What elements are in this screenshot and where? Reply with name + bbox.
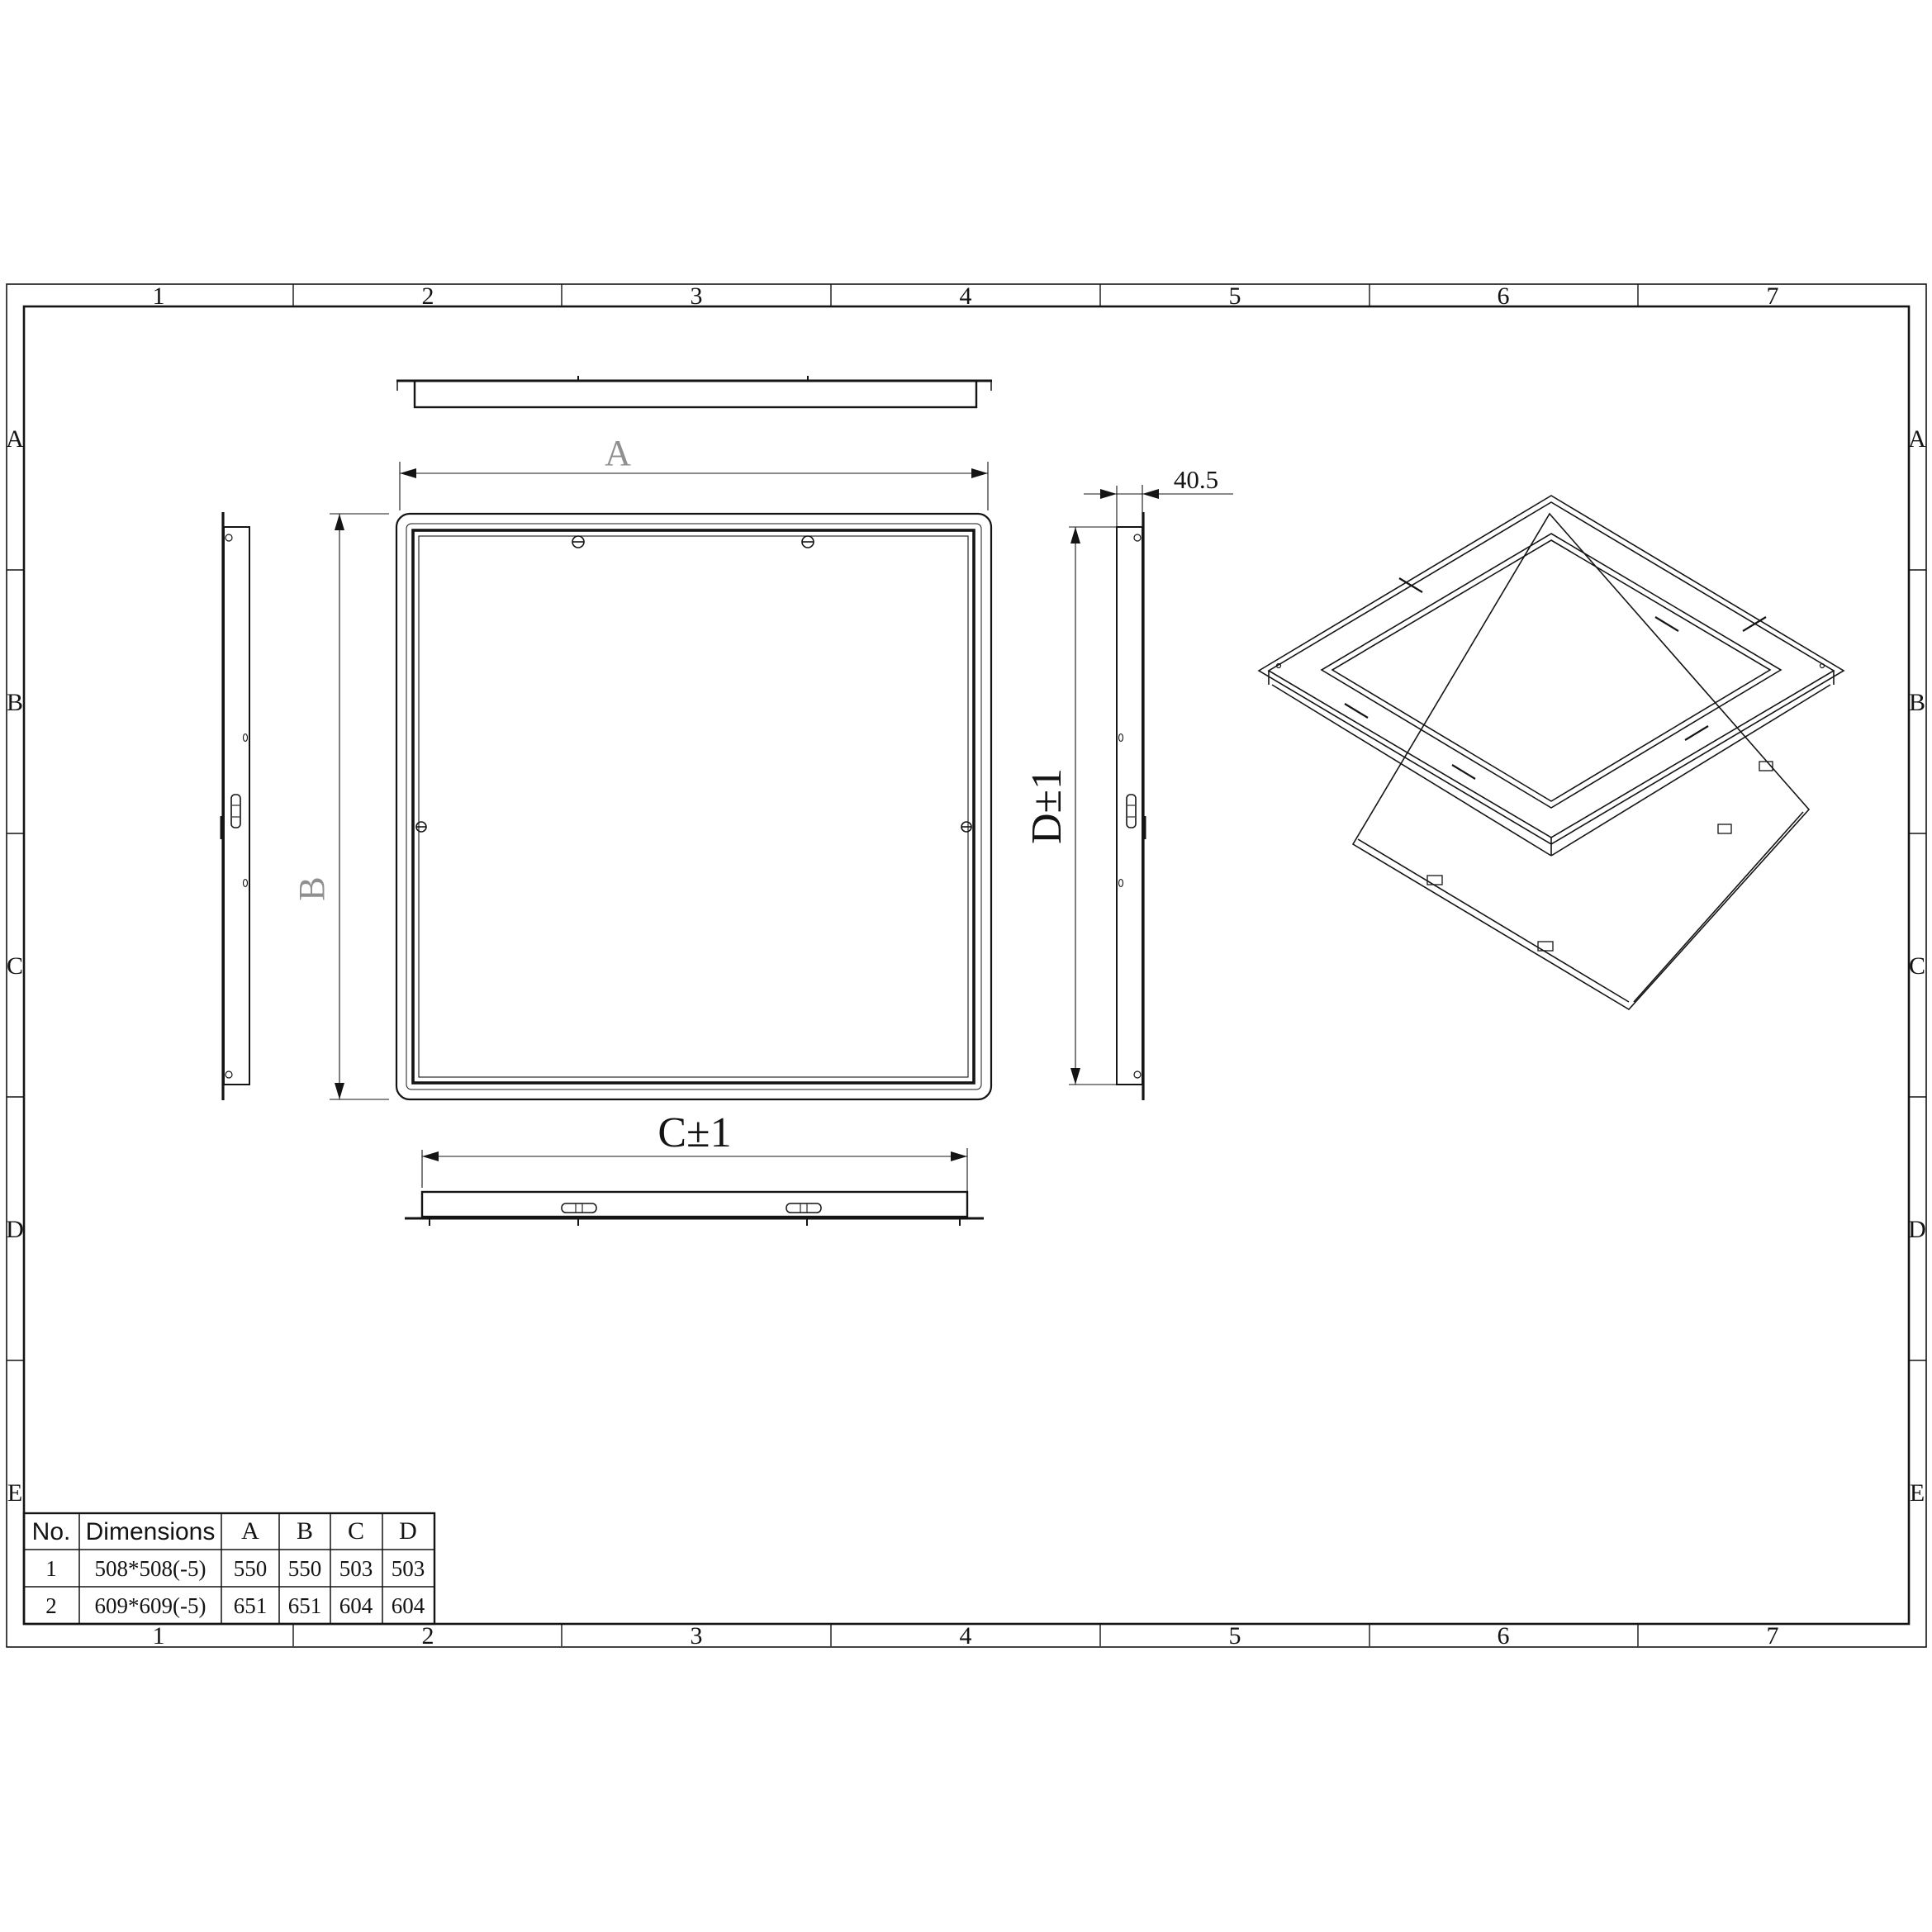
dimension-D: D±1 <box>1023 527 1117 1085</box>
dim-label-D: D±1 <box>1023 768 1070 844</box>
table-header-dimensions: Dimensions <box>86 1518 216 1545</box>
zone-col-bottom-1: 1 <box>153 1622 165 1650</box>
zone-col-top-7: 7 <box>1767 282 1779 310</box>
table-header-no: No. <box>32 1518 71 1545</box>
zone-col-top-2: 2 <box>422 282 434 310</box>
table-cell-r2-d: 604 <box>392 1593 425 1618</box>
dimension-table: No. Dimensions A B C D 1 508*508(-5) 550… <box>24 1513 434 1624</box>
zone-row-right-c: C <box>1909 952 1925 980</box>
zone-col-bottom-2: 2 <box>422 1622 434 1650</box>
table-cell-r1-c: 503 <box>339 1556 373 1581</box>
table-cell-r2-c: 604 <box>339 1593 373 1618</box>
table-cell-r2-no: 2 <box>45 1593 57 1618</box>
drawing-sheet: 1 2 3 4 5 6 7 1 2 3 4 5 6 7 A B C D E A … <box>0 0 1932 1932</box>
zone-col-top-4: 4 <box>960 282 972 310</box>
table-cell-r2-dimensions: 609*609(-5) <box>95 1593 206 1618</box>
dim-label-40-5: 40.5 <box>1174 465 1218 494</box>
table-header-c: C <box>348 1517 364 1545</box>
zone-col-bottom-5: 5 <box>1229 1622 1241 1650</box>
table-cell-r1-no: 1 <box>45 1556 57 1581</box>
zone-col-bottom-7: 7 <box>1767 1622 1779 1650</box>
zone-row-left-b: B <box>7 689 23 716</box>
view-isometric <box>1259 496 1844 1009</box>
zone-col-top-1: 1 <box>153 282 165 310</box>
cad-drawing: 1 2 3 4 5 6 7 1 2 3 4 5 6 7 A B C D E A … <box>0 0 1932 1932</box>
table-cell-r1-a: 550 <box>234 1556 268 1581</box>
zone-row-right-d: D <box>1908 1216 1926 1243</box>
door-latches <box>1427 762 1773 951</box>
table-cell-r1-dimensions: 508*508(-5) <box>95 1556 206 1581</box>
sheet-border <box>7 284 1926 1647</box>
view-bottom <box>405 1192 984 1226</box>
view-right-side <box>1117 512 1144 1100</box>
dimension-C: C±1 <box>422 1109 967 1195</box>
dim-label-C: C±1 <box>657 1109 731 1156</box>
zone-col-bottom-4: 4 <box>960 1622 972 1650</box>
dim-label-A: A <box>605 433 631 473</box>
dimension-40-5: 40.5 <box>1084 465 1233 545</box>
table-header-b: B <box>297 1517 313 1545</box>
zone-col-bottom-3: 3 <box>691 1622 703 1650</box>
view-front <box>396 514 991 1099</box>
zone-row-right-a: A <box>1908 425 1926 453</box>
table-cell-r2-b: 651 <box>288 1593 322 1618</box>
frame-slots <box>1345 578 1766 779</box>
table-header-a: A <box>241 1517 259 1545</box>
dimension-B: B <box>292 514 389 1099</box>
view-top <box>396 376 992 407</box>
dim-label-B: B <box>292 876 332 900</box>
table-cell-r2-a: 651 <box>234 1593 268 1618</box>
zone-labels: 1 2 3 4 5 6 7 1 2 3 4 5 6 7 A B C D E A … <box>6 282 1926 1650</box>
zone-row-right-e: E <box>1910 1479 1925 1507</box>
table-cell-r1-b: 550 <box>288 1556 322 1581</box>
zone-col-top-3: 3 <box>691 282 703 310</box>
table-cell-r1-d: 503 <box>392 1556 425 1581</box>
zone-row-left-d: D <box>6 1216 24 1243</box>
zone-col-top-6: 6 <box>1498 282 1510 310</box>
zone-col-bottom-6: 6 <box>1498 1622 1510 1650</box>
zone-row-right-b: B <box>1909 689 1925 716</box>
zone-row-left-c: C <box>7 952 23 980</box>
front-screws <box>416 536 971 832</box>
zone-row-left-a: A <box>6 425 24 453</box>
dimension-A: A <box>400 433 988 510</box>
view-left-side <box>222 512 249 1100</box>
zone-col-top-5: 5 <box>1229 282 1241 310</box>
zone-row-left-e: E <box>7 1479 22 1507</box>
table-header-d: D <box>399 1517 417 1545</box>
